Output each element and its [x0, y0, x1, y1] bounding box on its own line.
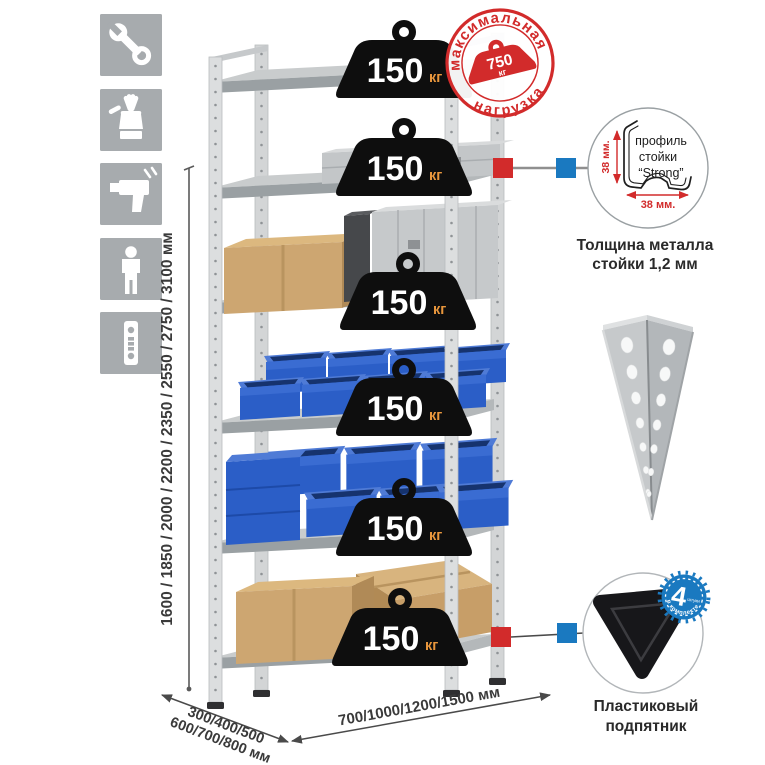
- rack-foot: [207, 702, 224, 709]
- width-dimension-label: 700/1000/1200/1500 мм: [337, 684, 501, 730]
- left-toolbar: [100, 14, 162, 374]
- wrench-icon: [100, 14, 162, 76]
- svg-text:150: 150: [367, 390, 424, 428]
- foot-caption-2: подпятник: [605, 718, 686, 735]
- svg-text:кг: кг: [429, 70, 442, 86]
- work-gloves-icon: [100, 89, 162, 151]
- width-dimension: 700/1000/1200/1500 мм: [292, 684, 550, 741]
- drill-icon: [100, 163, 162, 225]
- blue-connector-square: [557, 623, 577, 643]
- connector-bottom: [491, 623, 584, 647]
- connector-top: [493, 158, 590, 178]
- height-dimension: 1600 / 1850 / 2000 / 2200 / 2350 / 2550 …: [159, 166, 194, 691]
- profile-dim-vertical: 38 мм.: [600, 140, 612, 173]
- svg-text:150: 150: [367, 150, 424, 188]
- infographic-canvas: 1600 / 1850 / 2000 / 2200 / 2350 / 2550 …: [0, 0, 765, 765]
- rack-foot: [253, 690, 270, 697]
- svg-text:кг: кг: [429, 168, 442, 184]
- profile-dim-horizontal: 38 мм.: [641, 199, 676, 211]
- profile-caption-2: стойки 1,2 мм: [592, 256, 697, 273]
- rack-illustration: [207, 33, 514, 709]
- blue-tote: [226, 450, 306, 545]
- perforated-profile-icon: [100, 312, 162, 374]
- svg-text:150: 150: [367, 52, 424, 90]
- plastic-foot-detail: 4 штуки в комплекте Пластиковый подпятни…: [583, 569, 712, 735]
- profile-label-1: профиль: [635, 134, 687, 148]
- svg-text:кг: кг: [425, 638, 438, 654]
- svg-text:150: 150: [363, 620, 420, 658]
- svg-text:кг: кг: [429, 528, 442, 544]
- carton-box: [224, 233, 364, 314]
- svg-text:кг: кг: [433, 302, 446, 318]
- profile-label-3: “Strong”: [638, 166, 683, 180]
- person-icon: [100, 238, 162, 300]
- profile-detail: 38 мм. 38 мм. профиль стойки “Strong” То…: [577, 108, 714, 273]
- blue-connector-square: [556, 158, 576, 178]
- perforated-corner-post-image: [603, 315, 693, 520]
- profile-label-2: стойки: [639, 150, 677, 164]
- svg-text:кг: кг: [429, 408, 442, 424]
- depth-dimension: 300/400/500 600/700/800 мм: [162, 695, 288, 765]
- red-connector-square: [491, 627, 511, 647]
- foot-caption-1: Пластиковый: [594, 698, 699, 715]
- height-dimension-label: 1600 / 1850 / 2000 / 2200 / 2350 / 2550 …: [159, 232, 176, 626]
- svg-text:150: 150: [371, 284, 428, 322]
- red-connector-square: [493, 158, 513, 178]
- svg-text:150: 150: [367, 510, 424, 548]
- shelving-rack-infographic: 1600 / 1850 / 2000 / 2200 / 2350 / 2550 …: [0, 0, 765, 765]
- profile-caption-1: Толщина металла: [577, 237, 714, 254]
